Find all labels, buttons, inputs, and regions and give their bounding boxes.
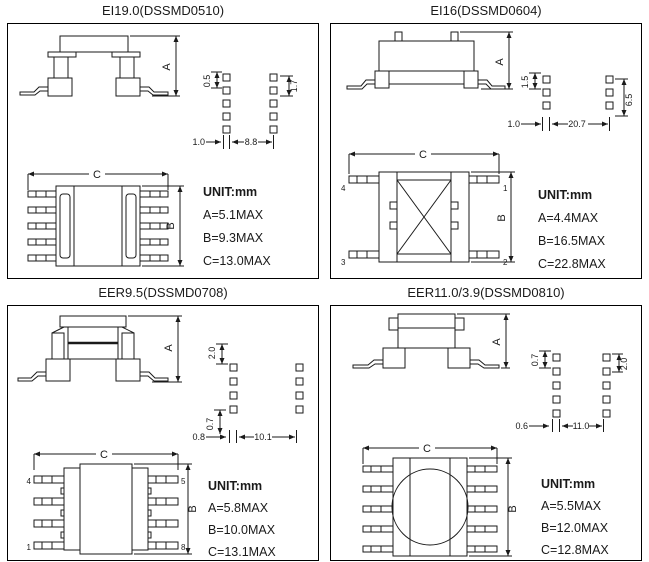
panel-eer95: EER9.5(DSSMD0708) bbox=[7, 284, 319, 561]
eer95-letter-c: C bbox=[100, 449, 108, 461]
ei16-pin-tr: 1 bbox=[503, 184, 508, 193]
ei19-drawing: A 0.5 1.7 1.0 8.8 bbox=[8, 24, 318, 276]
ei19-pad-layout: 0.5 1.7 1.0 8.8 bbox=[192, 72, 299, 149]
eer11-side-view bbox=[353, 314, 499, 368]
eer11-pad-vright: 2.0 bbox=[619, 358, 629, 371]
eer11-unit-label: UNIT:mm bbox=[541, 477, 595, 491]
eer11-letter-b: B bbox=[507, 505, 519, 512]
ei19-bottom-view: C B bbox=[28, 169, 184, 266]
panel-eer95-title: EER9.5(DSSMD0708) bbox=[7, 284, 319, 305]
eer95-pad-vleft: 0.7 bbox=[205, 418, 215, 431]
eer95-letter-a: A bbox=[163, 344, 175, 352]
eer95-dim-a: A bbox=[128, 316, 182, 382]
ei16-pad-vleft: 1.5 bbox=[520, 76, 530, 89]
ei16-pad-hgap: 20.7 bbox=[568, 119, 586, 129]
eer11-pad-hgap: 11.0 bbox=[573, 421, 590, 431]
ei19-dim-a-value: A=5.1MAX bbox=[203, 208, 264, 222]
ei19-dim-c-value: C=13.0MAX bbox=[203, 254, 271, 268]
ei16-unit-label: UNIT:mm bbox=[538, 188, 592, 202]
datasheet-page: { "dim_letters": {"a": "A", "b": "B", "c… bbox=[0, 0, 649, 562]
eer95-side-view bbox=[18, 316, 168, 381]
eer95-dim-b-value: B=10.0MAX bbox=[208, 523, 276, 537]
ei19-pad-vright: 1.7 bbox=[289, 80, 299, 93]
eer95-pad-vtop: 2.0 bbox=[207, 347, 217, 360]
ei16-dim-a-value: A=4.4MAX bbox=[538, 211, 599, 225]
ei19-unit-block: UNIT:mm A=5.1MAX B=9.3MAX C=13.0MAX bbox=[203, 185, 271, 268]
ei19-letter-a: A bbox=[161, 63, 173, 71]
ei16-drawing: A 1.5 6.5 1.0 20.7 bbox=[331, 24, 641, 276]
panel-eer11-title: EER11.0/3.9(DSSMD0810) bbox=[330, 284, 642, 305]
ei19-pad-vleft: 0.5 bbox=[202, 75, 212, 88]
eer11-pad-layout: 0.7 2.0 0.6 11.0 bbox=[515, 351, 629, 432]
ei16-letter-b: B bbox=[496, 214, 508, 221]
eer95-unit-block: UNIT:mm A=5.8MAX B=10.0MAX C=13.1MAX bbox=[208, 479, 276, 558]
panel-ei16-title: EI16(DSSMD0604) bbox=[330, 2, 642, 23]
panel-ei16: EI16(DSSMD0604) A bbox=[330, 2, 642, 279]
panel-ei19: EI19.0(DSSMD0510) bbox=[7, 2, 319, 279]
eer11-dim-c-value: C=12.8MAX bbox=[541, 543, 609, 557]
ei16-letter-c: C bbox=[419, 149, 427, 161]
eer11-dim-a-value: A=5.5MAX bbox=[541, 499, 602, 513]
ei19-dim-b-value: B=9.3MAX bbox=[203, 231, 264, 245]
ei16-pad-hleft: 1.0 bbox=[507, 119, 520, 129]
ei16-side-view bbox=[347, 32, 505, 89]
ei16-dim-b-value: B=16.5MAX bbox=[538, 234, 606, 248]
ei19-side-view bbox=[20, 36, 168, 96]
ei16-pin-tl: 4 bbox=[341, 184, 346, 193]
ei19-unit-label: UNIT:mm bbox=[203, 185, 257, 199]
eer95-pad-hleft: 0.8 bbox=[192, 432, 205, 442]
eer11-unit-block: UNIT:mm A=5.5MAX B=12.0MAX C=12.8MAX bbox=[541, 477, 609, 557]
eer95-dim-c-value: C=13.1MAX bbox=[208, 545, 276, 558]
eer95-pin-tl: 4 bbox=[27, 477, 32, 486]
eer95-pin-tr: 5 bbox=[181, 477, 186, 486]
ei19-letter-b: B bbox=[165, 222, 177, 229]
ei16-pin-bl: 3 bbox=[341, 258, 346, 267]
ei16-unit-block: UNIT:mm A=4.4MAX B=16.5MAX C=22.8MAX bbox=[538, 188, 606, 271]
eer11-letter-a: A bbox=[491, 338, 503, 346]
panel-ei16-box: A 1.5 6.5 1.0 20.7 bbox=[330, 23, 642, 279]
eer11-pad-hleft: 0.6 bbox=[515, 421, 528, 431]
ei16-pad-layout: 1.5 6.5 1.0 20.7 bbox=[507, 73, 634, 131]
eer95-letter-b: B bbox=[187, 505, 199, 512]
eer95-bottom-view: C 4 5 1 8 B bbox=[27, 449, 199, 554]
ei16-letter-a: A bbox=[494, 58, 506, 66]
eer95-dim-a-value: A=5.8MAX bbox=[208, 501, 269, 515]
ei16-bottom-view: C 4 1 3 2 B bbox=[341, 149, 515, 267]
ei19-pad-hgap: 8.8 bbox=[245, 137, 258, 147]
panel-eer11-box: A 0.7 2.0 0.6 11.0 bbox=[330, 305, 642, 561]
eer95-pad-layout: 2.0 0.7 0.8 10.1 bbox=[192, 344, 303, 443]
panel-eer11: EER11.0/3.9(DSSMD0810) bbox=[330, 284, 642, 561]
eer11-pad-vleft: 0.7 bbox=[530, 354, 540, 367]
panel-eer95-box: A 2.0 0.7 0.8 10.1 bbox=[7, 305, 319, 561]
eer95-pin-bl: 1 bbox=[27, 543, 32, 552]
ei19-letter-c: C bbox=[93, 169, 101, 181]
eer95-drawing: A 2.0 0.7 0.8 10.1 bbox=[8, 306, 318, 558]
ei19-dim-a: A bbox=[130, 36, 180, 96]
ei16-dim-c-value: C=22.8MAX bbox=[538, 257, 606, 271]
eer95-pin-br: 8 bbox=[181, 543, 186, 552]
eer95-pad-hgap: 10.1 bbox=[254, 432, 272, 442]
panel-ei19-box: A 0.5 1.7 1.0 8.8 bbox=[7, 23, 319, 279]
eer11-bottom-view: C B bbox=[363, 443, 519, 556]
ei19-pad-hleft: 1.0 bbox=[192, 137, 205, 147]
ei16-pad-vright: 6.5 bbox=[624, 94, 634, 107]
eer95-unit-label: UNIT:mm bbox=[208, 479, 262, 493]
panel-ei19-title: EI19.0(DSSMD0510) bbox=[7, 2, 319, 23]
eer11-dim-b-value: B=12.0MAX bbox=[541, 521, 609, 535]
eer11-drawing: A 0.7 2.0 0.6 11.0 bbox=[331, 306, 641, 558]
eer11-dim-a: A bbox=[457, 314, 510, 368]
eer11-letter-c: C bbox=[423, 443, 431, 455]
